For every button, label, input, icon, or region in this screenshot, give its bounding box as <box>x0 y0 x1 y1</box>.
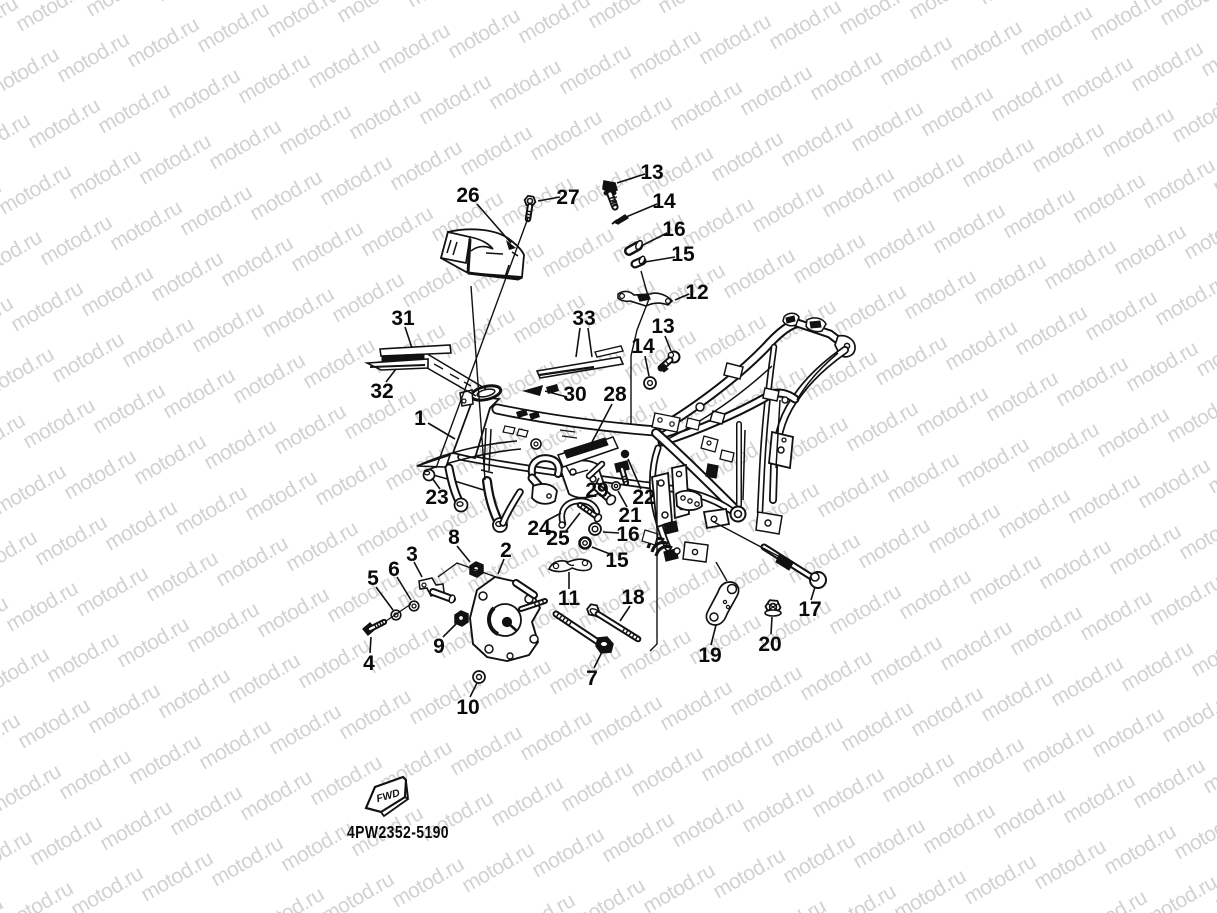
svg-text:motod.ru: motod.ru <box>53 28 133 87</box>
svg-text:motod.ru: motod.ru <box>171 481 251 540</box>
svg-text:motod.ru: motod.ru <box>311 451 391 510</box>
svg-text:motod.ru: motod.ru <box>598 808 678 867</box>
svg-text:motod.ru: motod.ru <box>912 382 992 441</box>
svg-text:motod.ru: motod.ru <box>248 883 328 913</box>
svg-text:motod.ru: motod.ru <box>982 367 1062 426</box>
svg-text:motod.ru: motod.ru <box>1059 769 1139 828</box>
svg-text:motod.ru: motod.ru <box>586 691 666 750</box>
svg-text:motod.ru: motod.ru <box>236 766 316 825</box>
svg-text:motod.ru: motod.ru <box>1071 886 1151 913</box>
svg-text:motod.ru: motod.ru <box>948 733 1028 792</box>
svg-text:motod.ru: motod.ru <box>0 892 7 913</box>
svg-text:motod.ru: motod.ru <box>212 532 292 591</box>
svg-text:motod.ru: motod.ru <box>200 415 280 474</box>
svg-text:motod.ru: motod.ru <box>36 211 116 270</box>
svg-text:motod.ru: motod.ru <box>444 4 524 63</box>
svg-text:motod.ru: motod.ru <box>123 13 203 72</box>
svg-text:motod.ru: motod.ru <box>1011 301 1091 360</box>
svg-text:motod.ru: motod.ru <box>1151 271 1217 330</box>
svg-text:motod.ru: motod.ru <box>796 646 876 705</box>
svg-text:motod.ru: motod.ru <box>806 46 886 105</box>
svg-text:motod.ru: motod.ru <box>1100 820 1180 879</box>
svg-text:motod.ru: motod.ru <box>96 796 176 855</box>
svg-text:motod.ru: motod.ru <box>965 550 1045 609</box>
svg-text:motod.ru: motod.ru <box>695 10 775 69</box>
svg-text:motod.ru: motod.ru <box>485 55 565 114</box>
svg-text:14: 14 <box>652 190 676 213</box>
svg-text:18: 18 <box>621 586 645 609</box>
svg-text:motod.ru: motod.ru <box>164 64 244 123</box>
svg-text:motod.ru: motod.ru <box>625 25 705 84</box>
svg-text:motod.ru: motod.ru <box>905 0 985 24</box>
svg-text:motod.ru: motod.ru <box>835 0 915 39</box>
svg-text:22: 22 <box>632 486 655 509</box>
svg-text:motod.ru: motod.ru <box>1158 688 1217 747</box>
svg-text:motod.ru: motod.ru <box>953 433 1033 492</box>
svg-text:motod.ru: motod.ru <box>304 34 384 93</box>
svg-text:16: 16 <box>662 218 685 241</box>
svg-text:motod.ru: motod.ru <box>1110 220 1190 279</box>
svg-text:motod.ru: motod.ru <box>907 682 987 741</box>
svg-text:motod.ru: motod.ru <box>538 223 618 282</box>
svg-text:motod.ru: motod.ru <box>43 628 123 687</box>
svg-text:motod.ru: motod.ru <box>72 562 152 621</box>
svg-text:motod.ru: motod.ru <box>159 364 239 423</box>
svg-text:motod.ru: motod.ru <box>125 730 205 789</box>
svg-text:motod.ru: motod.ru <box>820 880 900 913</box>
svg-text:motod.ru: motod.ru <box>1035 535 1115 594</box>
svg-text:motod.ru: motod.ru <box>1047 652 1127 711</box>
svg-text:motod.ru: motod.ru <box>929 199 1009 258</box>
svg-text:32: 32 <box>370 380 393 403</box>
svg-text:motod.ru: motod.ru <box>82 0 162 21</box>
svg-text:motod.ru: motod.ru <box>1168 88 1217 147</box>
svg-text:motod.ru: motod.ru <box>101 496 181 555</box>
svg-text:motod.ru: motod.ru <box>707 127 787 186</box>
svg-text:motod.ru: motod.ru <box>152 0 232 6</box>
svg-text:motod.ru: motod.ru <box>65 145 145 204</box>
svg-text:motod.ru: motod.ru <box>1170 805 1217 864</box>
svg-text:motod.ru: motod.ru <box>1052 352 1132 411</box>
svg-text:motod.ru: motod.ru <box>1156 0 1217 30</box>
svg-text:motod.ru: motod.ru <box>207 832 287 891</box>
svg-text:motod.ru: motod.ru <box>26 811 106 870</box>
svg-text:motod.ru: motod.ru <box>205 115 285 174</box>
svg-text:motod.ru: motod.ru <box>750 895 830 913</box>
svg-text:8: 8 <box>448 526 460 549</box>
svg-text:motod.ru: motod.ru <box>736 61 816 120</box>
svg-text:motod.ru: motod.ru <box>275 100 355 159</box>
svg-text:motod.ru: motod.ru <box>1122 337 1202 396</box>
svg-text:motod.ru: motod.ru <box>569 874 649 913</box>
svg-text:motod.ru: motod.ru <box>866 631 946 690</box>
svg-text:motod.ru: motod.ru <box>1098 103 1178 162</box>
svg-text:motod.ru: motod.ru <box>743 478 823 537</box>
svg-text:motod.ru: motod.ru <box>994 484 1074 543</box>
svg-text:motod.ru: motod.ru <box>193 0 273 57</box>
svg-text:motod.ru: motod.ru <box>808 763 888 822</box>
svg-text:motod.ru: motod.ru <box>890 865 970 913</box>
svg-text:7: 7 <box>586 667 598 690</box>
svg-text:motod.ru: motod.ru <box>555 40 635 99</box>
svg-text:25: 25 <box>546 527 570 550</box>
svg-text:15: 15 <box>605 549 629 572</box>
svg-text:motod.ru: motod.ru <box>176 181 256 240</box>
svg-text:17: 17 <box>798 598 821 621</box>
svg-text:motod.ru: motod.ru <box>265 700 345 759</box>
svg-text:motod.ru: motod.ru <box>1018 718 1098 777</box>
svg-text:motod.ru: motod.ru <box>224 649 304 708</box>
svg-text:motod.ru: motod.ru <box>668 793 748 852</box>
svg-text:12: 12 <box>685 281 708 304</box>
svg-text:motod.ru: motod.ru <box>318 868 398 913</box>
svg-text:3: 3 <box>406 543 418 566</box>
svg-text:motod.ru: motod.ru <box>1146 571 1217 630</box>
svg-text:motod.ru: motod.ru <box>84 679 164 738</box>
svg-text:motod.ru: motod.ru <box>0 877 77 913</box>
svg-text:motod.ru: motod.ru <box>697 727 777 786</box>
svg-text:motod.ru: motod.ru <box>1129 754 1209 813</box>
svg-text:motod.ru: motod.ru <box>0 43 63 102</box>
svg-text:motod.ru: motod.ru <box>388 853 468 912</box>
svg-text:motod.ru: motod.ru <box>837 697 917 756</box>
svg-text:13: 13 <box>640 161 663 184</box>
svg-text:motod.ru: motod.ru <box>960 850 1040 909</box>
svg-text:motod.ru: motod.ru <box>1057 52 1137 111</box>
svg-text:motod.ru: motod.ru <box>958 133 1038 192</box>
svg-text:motod.ru: motod.ru <box>270 400 350 459</box>
svg-text:motod.ru: motod.ru <box>0 760 65 819</box>
svg-text:5: 5 <box>367 567 379 590</box>
svg-text:motod.ru: motod.ru <box>1076 586 1156 645</box>
svg-text:motod.ru: motod.ru <box>439 304 519 363</box>
svg-text:motod.ru: motod.ru <box>854 514 934 573</box>
svg-text:motod.ru: motod.ru <box>726 661 806 720</box>
svg-text:motod.ru: motod.ru <box>895 565 975 624</box>
svg-text:motod.ru: motod.ru <box>229 349 309 408</box>
svg-text:motod.ru: motod.ru <box>666 76 746 135</box>
svg-text:motod.ru: motod.ru <box>48 328 128 387</box>
svg-text:27: 27 <box>556 186 579 209</box>
svg-text:motod.ru: motod.ru <box>287 217 367 276</box>
svg-text:motod.ru: motod.ru <box>719 244 799 303</box>
svg-text:motod.ru: motod.ru <box>557 757 637 816</box>
svg-text:motod.ru: motod.ru <box>876 31 956 90</box>
svg-text:motod.ru: motod.ru <box>748 178 828 237</box>
svg-text:motod.ru: motod.ru <box>282 517 362 576</box>
svg-text:motod.ru: motod.ru <box>60 445 140 504</box>
svg-text:motod.ru: motod.ru <box>987 67 1067 126</box>
svg-text:motod.ru: motod.ru <box>936 616 1016 675</box>
svg-text:motod.ru: motod.ru <box>0 343 58 402</box>
svg-text:motod.ru: motod.ru <box>849 814 929 873</box>
svg-text:motod.ru: motod.ru <box>1030 835 1110 894</box>
svg-text:motod.ru: motod.ru <box>415 70 495 129</box>
svg-text:motod.ru: motod.ru <box>188 298 268 357</box>
svg-text:29: 29 <box>585 479 608 502</box>
svg-text:motod.ru: motod.ru <box>919 799 999 858</box>
svg-text:motod.ru: motod.ru <box>584 0 664 33</box>
svg-text:motod.ru: motod.ru <box>137 847 217 906</box>
svg-text:motod.ru: motod.ru <box>234 49 314 108</box>
svg-text:motod.ru: motod.ru <box>246 166 326 225</box>
svg-text:motod.ru: motod.ru <box>1093 403 1173 462</box>
svg-text:motod.ru: motod.ru <box>654 0 734 18</box>
svg-text:13: 13 <box>651 315 674 338</box>
svg-text:motod.ru: motod.ru <box>106 196 186 255</box>
svg-text:26: 26 <box>456 184 479 207</box>
svg-text:motod.ru: motod.ru <box>7 277 87 336</box>
svg-text:motod.ru: motod.ru <box>1064 469 1144 528</box>
svg-text:1: 1 <box>414 407 426 430</box>
svg-text:9: 9 <box>433 635 445 658</box>
svg-text:motod.ru: motod.ru <box>1139 154 1217 213</box>
svg-text:motod.ru: motod.ru <box>403 0 483 12</box>
svg-text:motod.ru: motod.ru <box>1134 454 1214 513</box>
svg-text:motod.ru: motod.ru <box>277 817 357 876</box>
svg-text:motod.ru: motod.ru <box>818 163 898 222</box>
svg-text:motod.ru: motod.ru <box>263 0 343 42</box>
svg-text:motod.ru: motod.ru <box>316 151 396 210</box>
svg-text:motod.ru: motod.ru <box>130 430 210 489</box>
svg-text:motod.ru: motod.ru <box>1016 1 1096 60</box>
svg-text:motod.ru: motod.ru <box>113 613 193 672</box>
svg-text:motod.ru: motod.ru <box>0 460 70 519</box>
svg-text:motod.ru: motod.ru <box>166 781 246 840</box>
svg-text:23: 23 <box>425 486 448 509</box>
svg-text:motod.ru: motod.ru <box>1040 235 1120 294</box>
svg-text:motod.ru: motod.ru <box>335 685 415 744</box>
svg-text:motod.ru: motod.ru <box>1163 388 1217 447</box>
svg-text:motod.ru: motod.ru <box>970 250 1050 309</box>
svg-text:motod.ru: motod.ru <box>77 262 157 321</box>
svg-text:motod.ru: motod.ru <box>458 838 538 897</box>
svg-text:motod.ru: motod.ru <box>14 694 94 753</box>
svg-text:motod.ru: motod.ru <box>0 160 75 219</box>
svg-text:motod.ru: motod.ru <box>253 583 333 642</box>
svg-text:motod.ru: motod.ru <box>1088 703 1168 762</box>
svg-text:motod.ru: motod.ru <box>871 331 951 390</box>
svg-text:motod.ru: motod.ru <box>294 634 374 693</box>
svg-text:motod.ru: motod.ru <box>357 202 437 261</box>
svg-text:motod.ru: motod.ru <box>487 772 567 831</box>
svg-text:motod.ru: motod.ru <box>352 502 432 561</box>
svg-text:motod.ru: motod.ru <box>386 136 466 195</box>
svg-text:motod.ru: motod.ru <box>217 232 297 291</box>
svg-text:motod.ru: motod.ru <box>999 184 1079 243</box>
svg-text:4PW2352-5190: 4PW2352-5190 <box>347 824 449 843</box>
svg-text:motod.ru: motod.ru <box>724 0 804 3</box>
svg-text:motod.ru: motod.ru <box>1105 520 1185 579</box>
svg-text:motod.ru: motod.ru <box>374 19 454 78</box>
svg-text:motod.ru: motod.ru <box>924 499 1004 558</box>
svg-text:motod.ru: motod.ru <box>0 643 53 702</box>
svg-text:motod.ru: motod.ru <box>859 214 939 273</box>
svg-text:motod.ru: motod.ru <box>94 79 174 138</box>
svg-text:motod.ru: motod.ru <box>989 784 1069 843</box>
svg-text:motod.ru: motod.ru <box>118 313 198 372</box>
svg-text:motod.ru: motod.ru <box>446 721 526 780</box>
svg-text:motod.ru: motod.ru <box>738 778 818 837</box>
svg-text:motod.ru: motod.ru <box>475 655 555 714</box>
svg-text:motod.ru: motod.ru <box>842 397 922 456</box>
svg-text:motod.ru: motod.ru <box>514 0 594 48</box>
svg-text:motod.ru: motod.ru <box>1006 601 1086 660</box>
svg-text:motod.ru: motod.ru <box>639 859 719 913</box>
svg-text:motod.ru: motod.ru <box>55 745 135 804</box>
svg-text:10: 10 <box>456 696 479 719</box>
svg-text:30: 30 <box>563 383 586 406</box>
svg-text:motod.ru: motod.ru <box>12 0 92 36</box>
svg-text:motod.ru: motod.ru <box>888 148 968 207</box>
svg-text:19: 19 <box>698 644 721 667</box>
svg-text:motod.ru: motod.ru <box>830 280 910 339</box>
svg-text:motod.ru: motod.ru <box>154 664 234 723</box>
svg-text:motod.ru: motod.ru <box>847 97 927 156</box>
svg-text:motod.ru: motod.ru <box>825 580 905 639</box>
svg-text:motod.ru: motod.ru <box>1081 286 1161 345</box>
svg-text:motod.ru: motod.ru <box>67 862 147 913</box>
svg-text:motod.ru: motod.ru <box>596 91 676 150</box>
svg-text:motod.ru: motod.ru <box>516 706 596 765</box>
svg-text:motod.ru: motod.ru <box>941 316 1021 375</box>
svg-text:motod.ru: motod.ru <box>19 394 99 453</box>
svg-text:motod.ru: motod.ru <box>183 598 263 657</box>
svg-text:motod.ru: motod.ru <box>656 676 736 735</box>
svg-text:motod.ru: motod.ru <box>526 106 606 165</box>
svg-text:motod.ru: motod.ru <box>499 889 579 913</box>
svg-text:motod.ru: motod.ru <box>1127 37 1207 96</box>
svg-text:motod.ru: motod.ru <box>142 547 222 606</box>
svg-text:motod.ru: motod.ru <box>2 577 82 636</box>
svg-text:motod.ru: motod.ru <box>195 715 275 774</box>
svg-text:motod.ru: motod.ru <box>1028 118 1108 177</box>
svg-text:motod.ru: motod.ru <box>813 463 893 522</box>
svg-text:motod.ru: motod.ru <box>258 283 338 342</box>
svg-text:motod.ru: motod.ru <box>1141 871 1217 913</box>
svg-text:motod.ru: motod.ru <box>709 844 789 903</box>
svg-text:motod.ru: motod.ru <box>24 94 104 153</box>
svg-text:motod.ru: motod.ru <box>456 121 536 180</box>
svg-text:motod.ru: motod.ru <box>946 16 1026 75</box>
svg-text:2: 2 <box>500 539 512 562</box>
svg-text:motod.ru: motod.ru <box>767 712 847 771</box>
svg-text:motod.ru: motod.ru <box>977 667 1057 726</box>
svg-text:motod.ru: motod.ru <box>779 829 859 888</box>
svg-text:motod.ru: motod.ru <box>1023 418 1103 477</box>
svg-text:motod.ru: motod.ru <box>147 247 227 306</box>
svg-text:motod.ru: motod.ru <box>1069 169 1149 228</box>
svg-text:motod.ru: motod.ru <box>333 0 413 27</box>
svg-text:motod.ru: motod.ru <box>345 85 425 144</box>
svg-text:31: 31 <box>391 307 415 330</box>
svg-text:motod.ru: motod.ru <box>883 448 963 507</box>
svg-text:motod.ru: motod.ru <box>789 229 869 288</box>
svg-text:20: 20 <box>758 633 781 656</box>
svg-text:motod.ru: motod.ru <box>765 0 845 54</box>
svg-text:15: 15 <box>671 243 695 266</box>
svg-text:motod.ru: motod.ru <box>777 112 857 171</box>
svg-text:motod.ru: motod.ru <box>627 742 707 801</box>
svg-text:motod.ru: motod.ru <box>878 748 958 807</box>
svg-text:33: 33 <box>572 307 595 330</box>
svg-text:motod.ru: motod.ru <box>528 823 608 882</box>
svg-text:4: 4 <box>363 652 375 675</box>
svg-text:motod.ru: motod.ru <box>917 82 997 141</box>
svg-text:motod.ru: motod.ru <box>545 640 625 699</box>
svg-text:11: 11 <box>558 587 581 610</box>
svg-text:motod.ru: motod.ru <box>900 265 980 324</box>
svg-text:motod.ru: motod.ru <box>241 466 321 525</box>
svg-text:motod.ru: motod.ru <box>1117 637 1197 696</box>
svg-text:motod.ru: motod.ru <box>31 511 111 570</box>
svg-text:6: 6 <box>388 558 400 581</box>
svg-text:motod.ru: motod.ru <box>89 379 169 438</box>
svg-text:motod.ru: motod.ru <box>975 0 1055 9</box>
svg-text:14: 14 <box>631 335 655 358</box>
svg-text:motod.ru: motod.ru <box>135 130 215 189</box>
svg-text:motod.ru: motod.ru <box>1086 0 1166 45</box>
svg-text:28: 28 <box>603 383 627 406</box>
